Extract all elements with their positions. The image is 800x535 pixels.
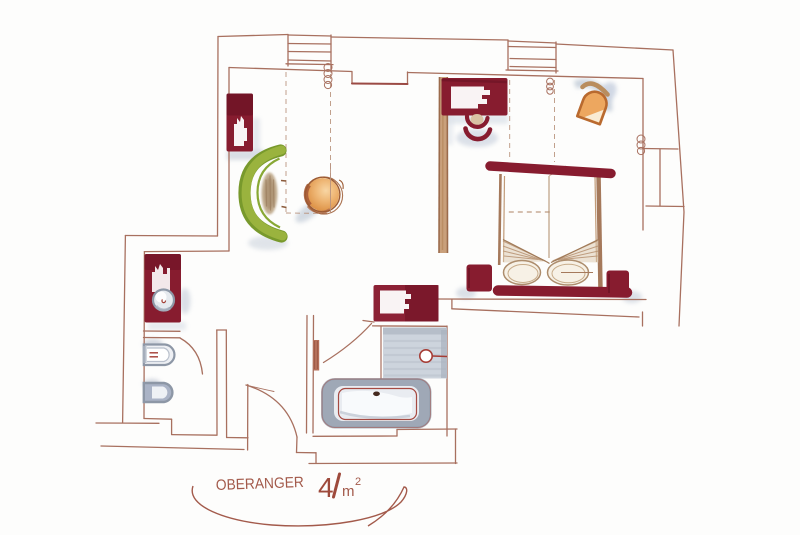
svg-text:2: 2 [355, 476, 361, 488]
svg-text:OBERANGER: OBERANGER [216, 474, 305, 494]
svg-text:m: m [342, 483, 355, 500]
svg-text:4: 4 [318, 472, 334, 503]
